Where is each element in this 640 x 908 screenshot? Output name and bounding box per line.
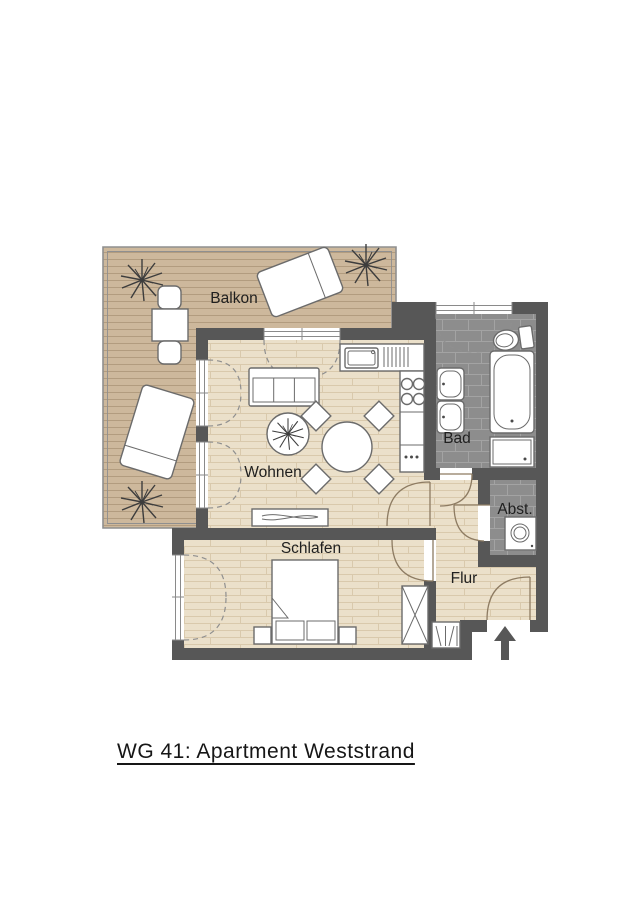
plant-pot: [267, 413, 309, 455]
dining-table: [322, 422, 372, 472]
bathtub: [490, 351, 534, 433]
nightstand: [254, 627, 271, 644]
double-washbasin: [437, 368, 464, 433]
label-abst: Abst.: [497, 501, 532, 518]
window: [436, 302, 512, 314]
shower: [490, 437, 534, 467]
washing-machine-icon: [505, 517, 536, 550]
window: [172, 555, 184, 640]
window: [264, 328, 340, 340]
cabinet-dots: [405, 456, 419, 459]
balcony-table: [152, 309, 188, 341]
entrance-doorway: [487, 620, 530, 632]
balcony-door: [196, 360, 208, 426]
label-balkon: Balkon: [210, 290, 257, 307]
coat-rack: [432, 622, 460, 648]
doorway: [424, 540, 436, 581]
label-wohnen: Wohnen: [244, 464, 301, 481]
label-schlafen: Schlafen: [281, 540, 341, 557]
sofa: [249, 368, 319, 406]
floor-plan-svg: Balkon Wohnen Bad Abst. Flur Schlafen: [0, 0, 640, 908]
balcony-chair: [158, 286, 181, 309]
bed: [272, 560, 338, 644]
kitchen-drainer: [384, 347, 408, 367]
label-flur: Flur: [451, 570, 478, 587]
sideboard: [252, 509, 328, 526]
label-bad: Bad: [443, 430, 471, 447]
nightstand: [339, 627, 356, 644]
balcony-door: [196, 442, 208, 508]
doorway: [478, 505, 490, 541]
page-title: WG 41: Apartment Weststrand: [117, 740, 415, 764]
balcony-chair: [158, 341, 181, 364]
wardrobe: [402, 586, 428, 644]
